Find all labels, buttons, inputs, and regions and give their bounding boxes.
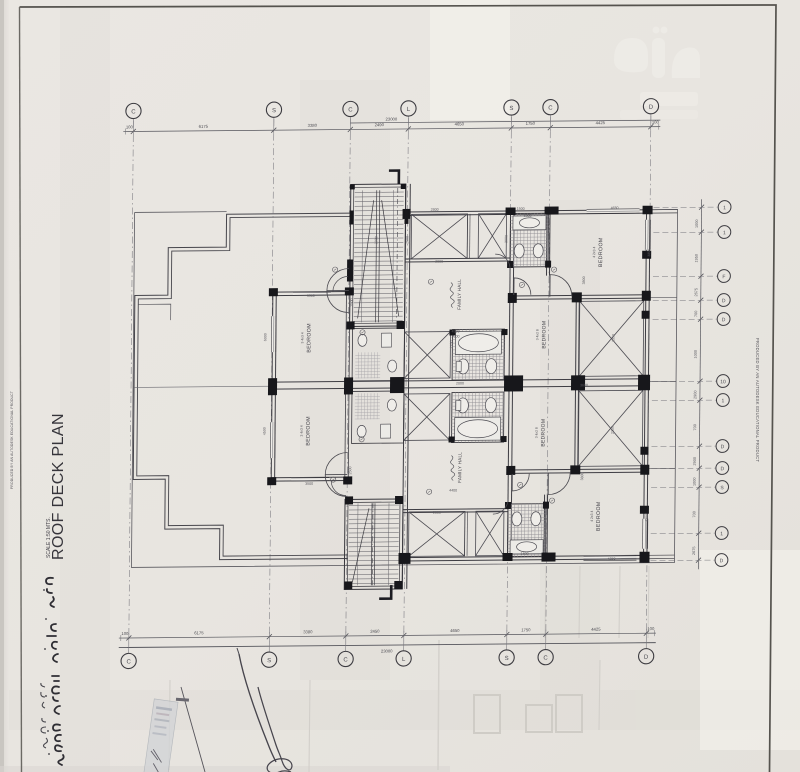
svg-text:FAMILY HALL: FAMILY HALL: [457, 452, 462, 483]
svg-text:1400: 1400: [521, 552, 529, 556]
svg-text:4650: 4650: [450, 628, 460, 633]
svg-text:3600: 3600: [580, 383, 588, 387]
svg-text:100: 100: [647, 626, 655, 631]
svg-text:3500: 3500: [307, 294, 315, 298]
svg-text:3 4x2 8: 3 4x2 8: [535, 329, 539, 340]
svg-text:100: 100: [126, 124, 134, 129]
svg-text:2000: 2000: [451, 334, 459, 338]
svg-text:2500: 2500: [350, 298, 354, 306]
svg-text:4 2x3 4: 4 2x3 4: [590, 511, 594, 522]
svg-text:1000: 1000: [695, 220, 699, 228]
svg-text:S: S: [509, 106, 513, 112]
svg-text:D: D: [644, 655, 649, 661]
svg-text:3850: 3850: [647, 249, 651, 257]
svg-text:3380: 3380: [303, 629, 313, 634]
svg-text:F: F: [722, 274, 725, 280]
svg-text:3800: 3800: [582, 276, 586, 284]
svg-text:BEDROOM: BEDROOM: [306, 416, 312, 446]
svg-text:D: D: [722, 298, 726, 304]
svg-text:4500: 4500: [451, 329, 459, 333]
svg-text:S: S: [272, 108, 276, 114]
svg-text:D: D: [649, 105, 654, 111]
svg-text:SCALE 1:50 MTS.: SCALE 1:50 MTS.: [46, 517, 52, 558]
svg-text:3 4x3 4: 3 4x3 4: [300, 332, 304, 343]
svg-text:1950: 1950: [695, 254, 699, 262]
svg-text:BEDROOM: BEDROOM: [541, 321, 547, 349]
svg-text:2350: 2350: [611, 426, 615, 434]
svg-text:700: 700: [692, 511, 696, 517]
svg-text:10: 10: [720, 379, 726, 385]
svg-text:6175: 6175: [194, 630, 204, 635]
svg-text:700: 700: [693, 424, 697, 430]
svg-text:2600: 2600: [405, 236, 409, 244]
svg-text:BEDROOM: BEDROOM: [306, 323, 312, 353]
svg-text:100: 100: [121, 631, 129, 636]
svg-text:C: C: [131, 109, 136, 115]
svg-text:FAMILY HALL: FAMILY HALL: [457, 279, 462, 310]
svg-text:C: C: [126, 659, 131, 665]
svg-text:4425: 4425: [596, 120, 606, 125]
svg-text:4250: 4250: [645, 514, 649, 522]
svg-text:4400: 4400: [449, 488, 457, 492]
svg-text:2900: 2900: [693, 457, 697, 465]
svg-text:23000: 23000: [381, 649, 393, 654]
svg-text:D: D: [720, 466, 724, 472]
svg-text:D: D: [722, 317, 726, 323]
svg-text:1000: 1000: [694, 350, 698, 358]
svg-text:4 2x3 4: 4 2x3 4: [592, 247, 596, 258]
svg-text:2490: 2490: [375, 122, 385, 127]
svg-text:S: S: [505, 656, 509, 662]
svg-text:1: 1: [723, 205, 726, 211]
svg-text:2350: 2350: [611, 334, 615, 342]
svg-text:1: 1: [723, 230, 726, 236]
svg-text:3000: 3000: [504, 235, 508, 243]
svg-text:1500: 1500: [517, 207, 525, 211]
svg-text:2900: 2900: [693, 391, 697, 399]
svg-text:4650: 4650: [611, 206, 619, 210]
svg-text:D: D: [720, 558, 724, 564]
svg-text:BEDROOM: BEDROOM: [540, 419, 546, 447]
svg-text:C: C: [543, 656, 548, 662]
svg-text:6175: 6175: [199, 124, 209, 129]
svg-text:3380: 3380: [308, 123, 318, 128]
svg-text:2675: 2675: [694, 288, 698, 296]
svg-text:2150: 2150: [449, 341, 453, 349]
svg-text:4425: 4425: [591, 627, 601, 632]
svg-text:3800: 3800: [580, 472, 584, 480]
svg-text:1: 1: [721, 398, 724, 404]
svg-text:1750: 1750: [521, 627, 531, 632]
svg-text:2000: 2000: [435, 260, 443, 264]
svg-text:PRODUCED BY AN AUTODESK EDUCAT: PRODUCED BY AN AUTODESK EDUCATIONAL PROD…: [10, 391, 14, 489]
svg-text:C: C: [548, 106, 553, 112]
svg-text:100: 100: [652, 120, 660, 125]
svg-text:2000: 2000: [374, 236, 378, 244]
svg-text:C: C: [343, 657, 348, 663]
svg-text:1000: 1000: [693, 478, 697, 486]
svg-text:3500: 3500: [305, 482, 313, 486]
svg-text:700: 700: [694, 311, 698, 317]
svg-text:BEDROOM: BEDROOM: [598, 237, 604, 267]
svg-text:3 4x3 4: 3 4x3 4: [300, 425, 304, 436]
svg-text:2000: 2000: [433, 511, 441, 515]
svg-text:PRODUCED BY AN AUTODESK EDUCAT: PRODUCED BY AN AUTODESK EDUCATIONAL PROD…: [755, 338, 760, 463]
svg-text:4500: 4500: [263, 427, 267, 435]
svg-text:4250: 4250: [607, 557, 615, 561]
svg-text:2450: 2450: [370, 629, 380, 634]
svg-text:ROOF DECK PLAN: ROOF DECK PLAN: [50, 413, 67, 560]
svg-text:2000: 2000: [456, 381, 464, 385]
svg-text:S: S: [267, 658, 271, 664]
svg-text:4650: 4650: [455, 121, 465, 126]
svg-text:C: C: [348, 107, 353, 113]
svg-text:D: D: [721, 444, 725, 450]
svg-text:1: 1: [720, 531, 723, 537]
svg-text:2500: 2500: [348, 466, 352, 474]
svg-text:BEDROOM: BEDROOM: [596, 501, 602, 531]
svg-text:2675: 2675: [692, 547, 696, 555]
svg-text:3 4x2 8: 3 4x2 8: [535, 427, 539, 438]
svg-text:23000: 23000: [386, 117, 398, 122]
svg-text:1800: 1800: [524, 214, 532, 218]
svg-text:2800: 2800: [431, 208, 439, 212]
svg-text:6000: 6000: [263, 333, 267, 341]
svg-text:1750: 1750: [526, 121, 536, 126]
